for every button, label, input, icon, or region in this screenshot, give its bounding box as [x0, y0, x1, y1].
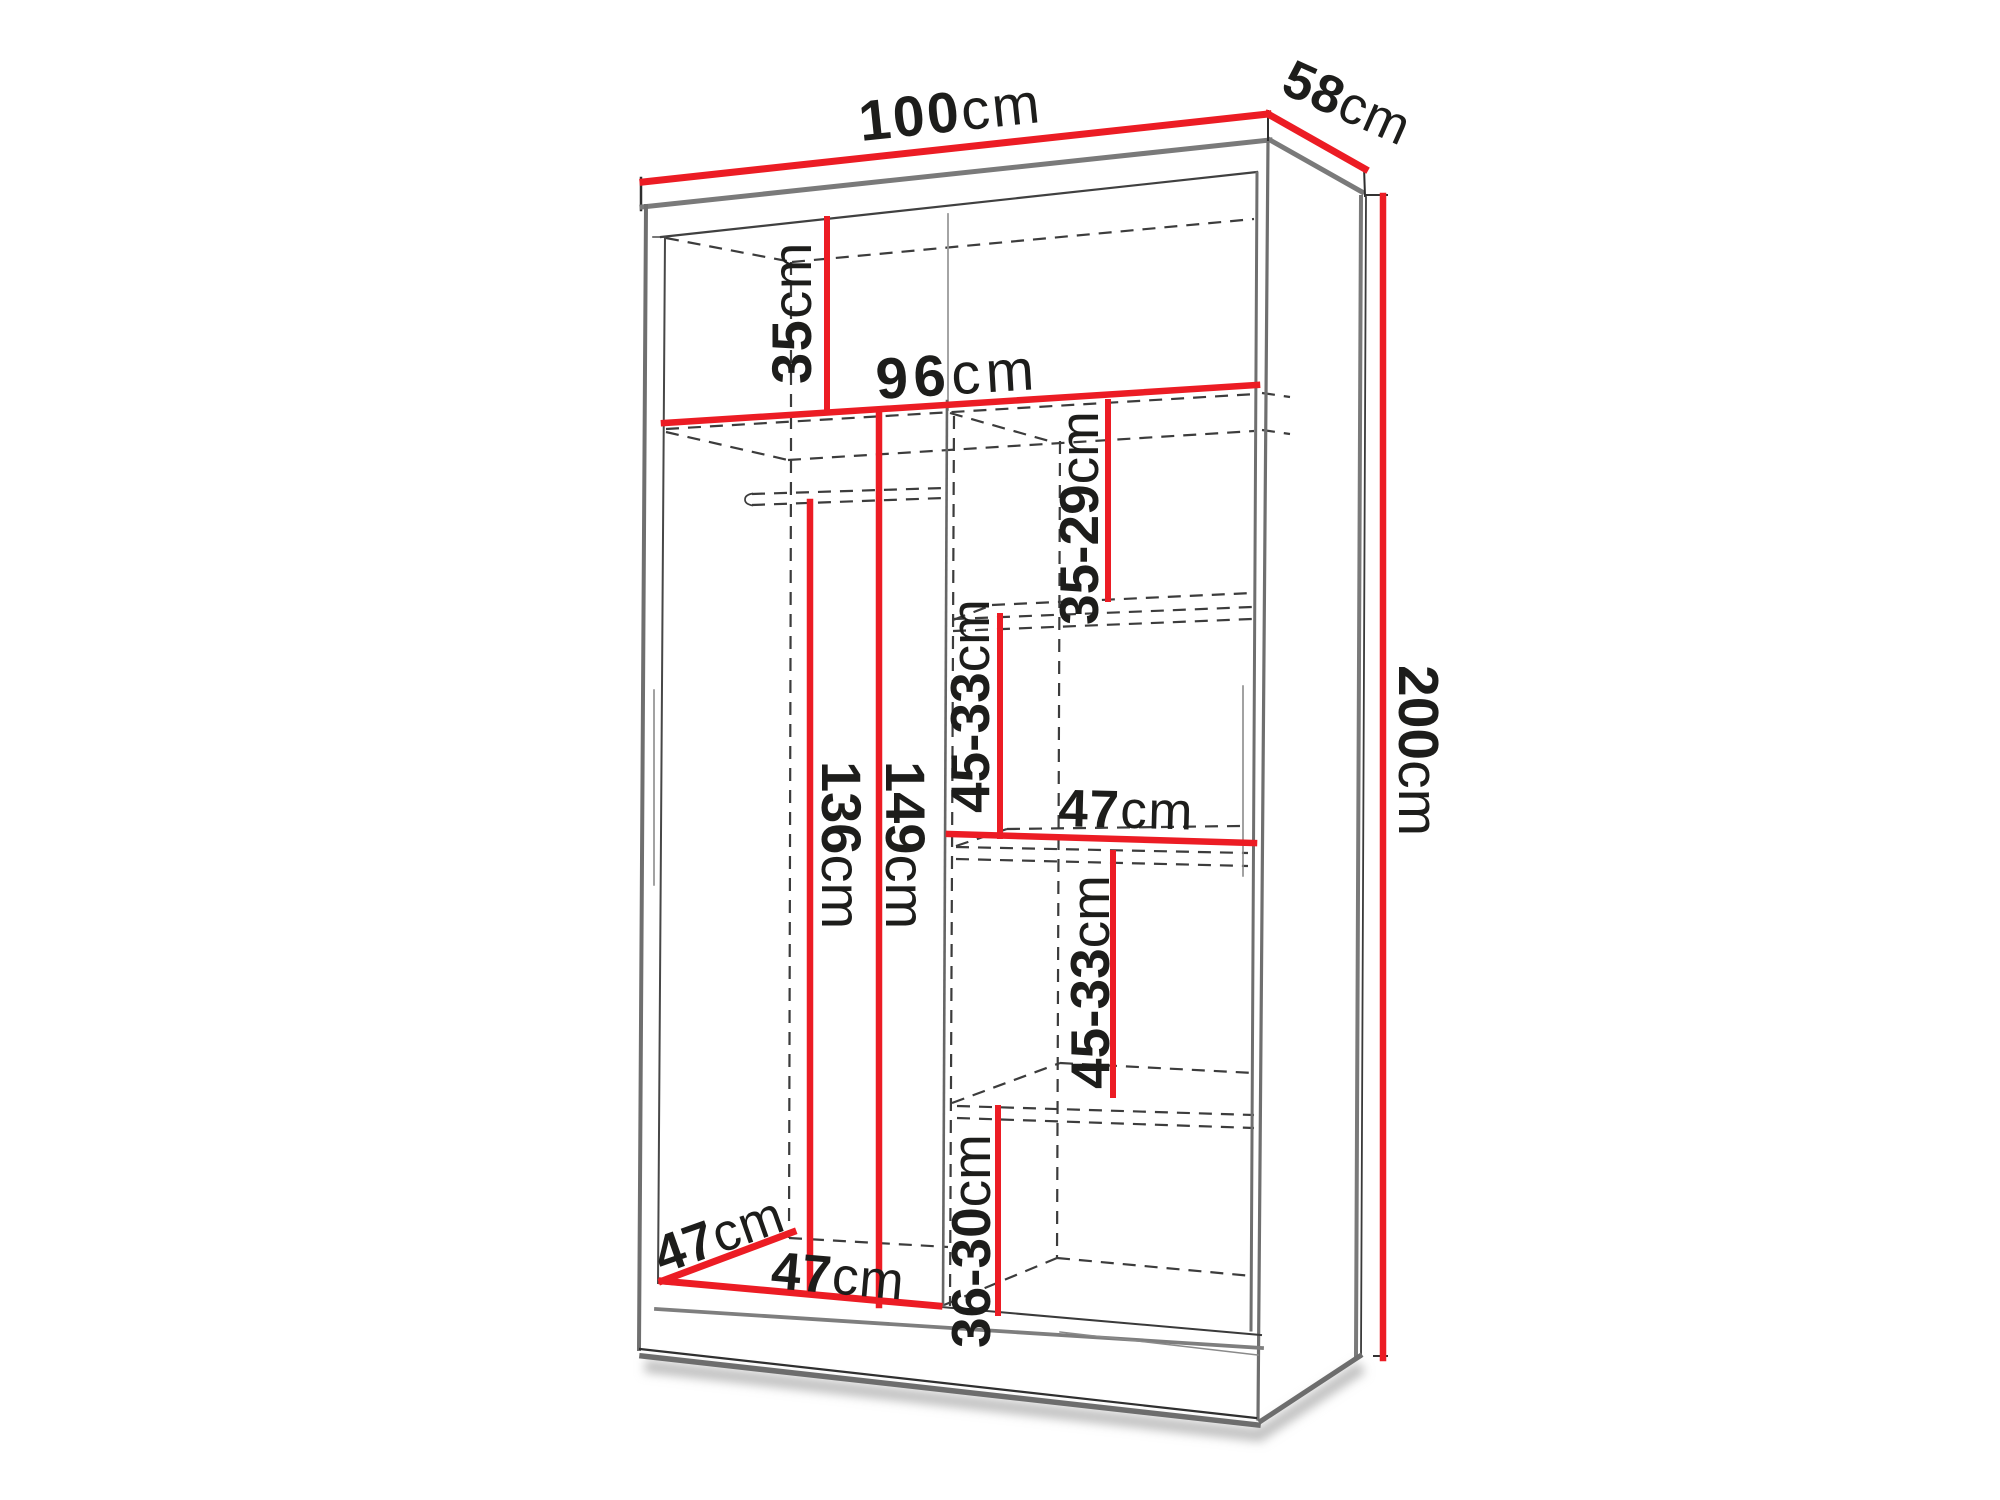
- svg-text:136cm: 136cm: [810, 761, 873, 929]
- svg-text:35-29cm: 35-29cm: [1048, 411, 1110, 625]
- svg-text:45-33cm: 45-33cm: [939, 599, 1001, 813]
- svg-text:35cm: 35cm: [760, 241, 823, 384]
- svg-text:149cm: 149cm: [874, 761, 937, 929]
- svg-text:200cm: 200cm: [1386, 665, 1450, 836]
- svg-text:96cm: 96cm: [874, 337, 1042, 412]
- svg-text:47cm: 47cm: [1058, 779, 1195, 842]
- svg-text:47cm: 47cm: [769, 1241, 907, 1311]
- svg-text:45-33cm: 45-33cm: [1059, 875, 1121, 1089]
- svg-text:36-30cm: 36-30cm: [940, 1134, 1002, 1348]
